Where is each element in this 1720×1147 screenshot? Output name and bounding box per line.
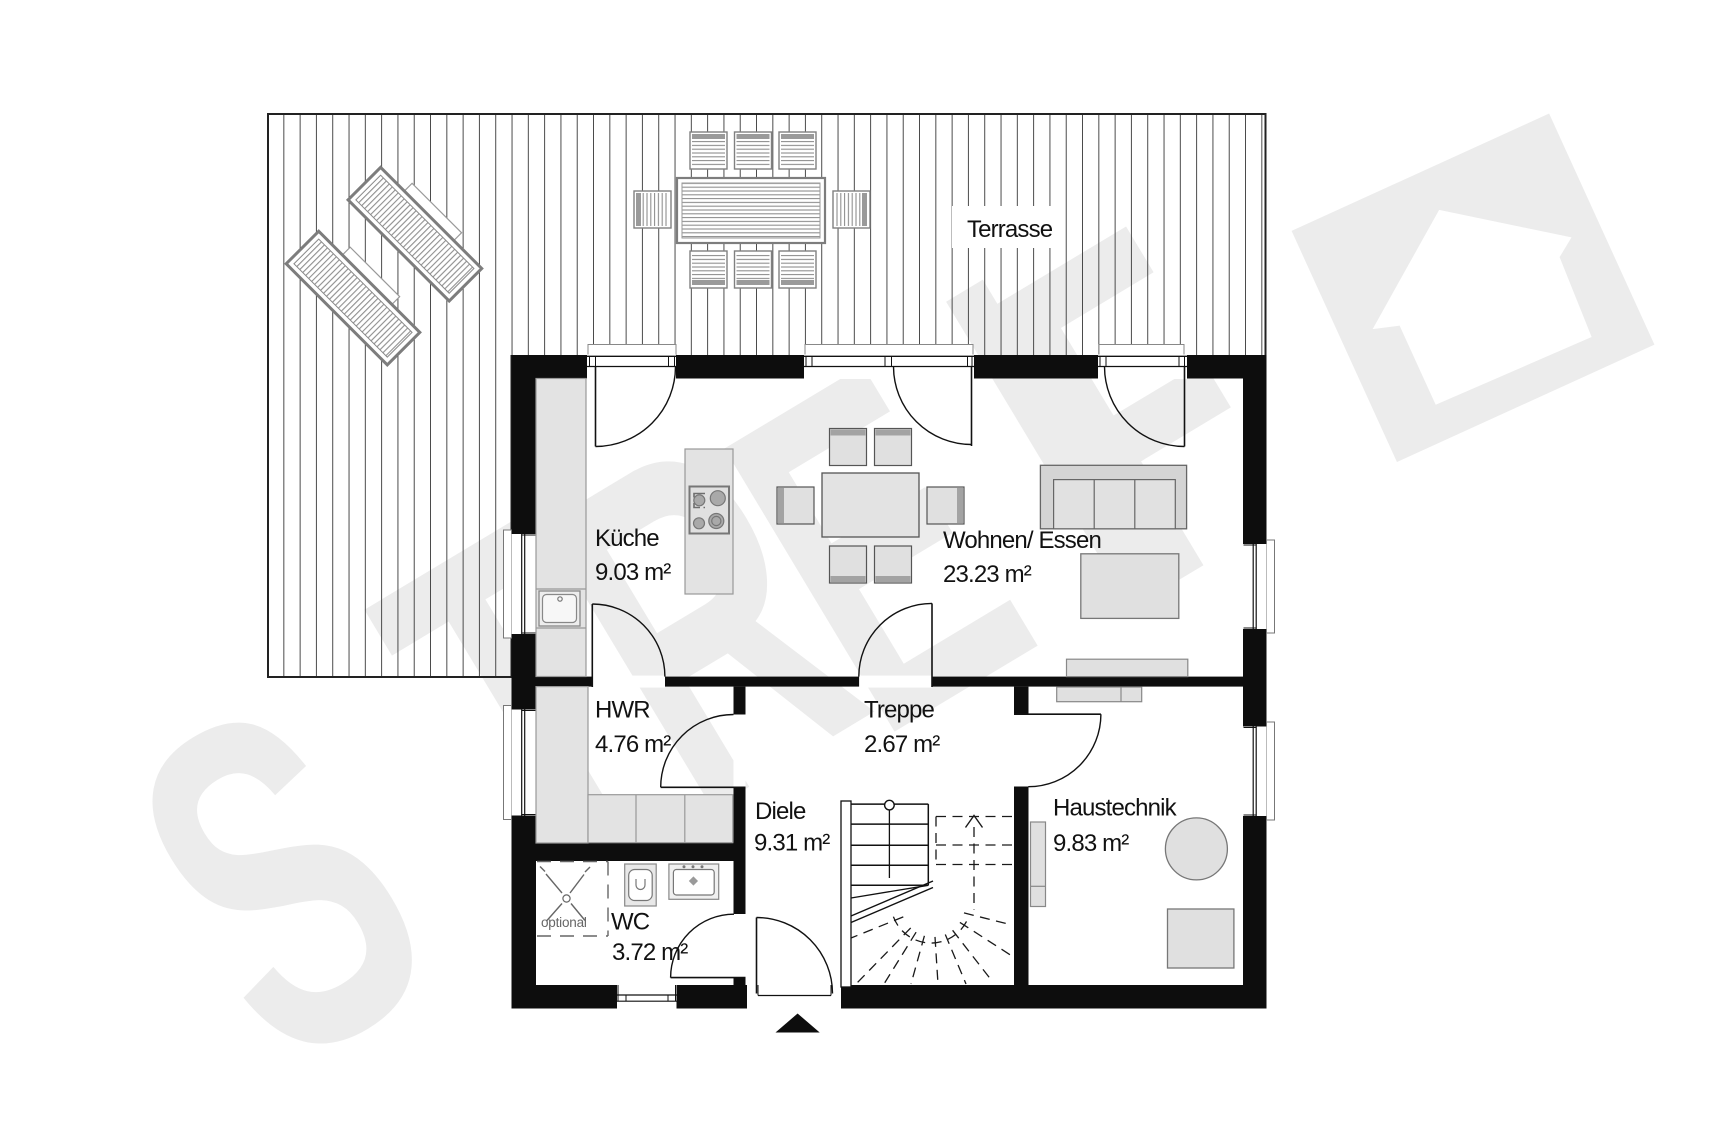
svg-text:optional: optional: [541, 915, 587, 930]
svg-text:3.72 m²: 3.72 m²: [612, 939, 688, 966]
svg-text:9.83 m²: 9.83 m²: [1053, 830, 1129, 857]
svg-text:Diele: Diele: [755, 798, 806, 825]
svg-text:Haustechnik: Haustechnik: [1053, 795, 1178, 822]
svg-text:4.76 m²: 4.76 m²: [595, 731, 671, 758]
svg-text:Terrasse: Terrasse: [967, 216, 1053, 243]
svg-text:HWR: HWR: [595, 697, 650, 724]
svg-text:WC: WC: [611, 909, 650, 936]
svg-text:2.67 m²: 2.67 m²: [864, 731, 940, 758]
svg-text:9.03 m²: 9.03 m²: [595, 559, 671, 586]
svg-text:23.23 m²: 23.23 m²: [943, 561, 1032, 588]
svg-text:Küche: Küche: [595, 525, 659, 552]
svg-text:9.31 m²: 9.31 m²: [754, 830, 830, 857]
svg-text:Wohnen/ Essen: Wohnen/ Essen: [943, 527, 1101, 554]
svg-text:Treppe: Treppe: [864, 697, 935, 724]
